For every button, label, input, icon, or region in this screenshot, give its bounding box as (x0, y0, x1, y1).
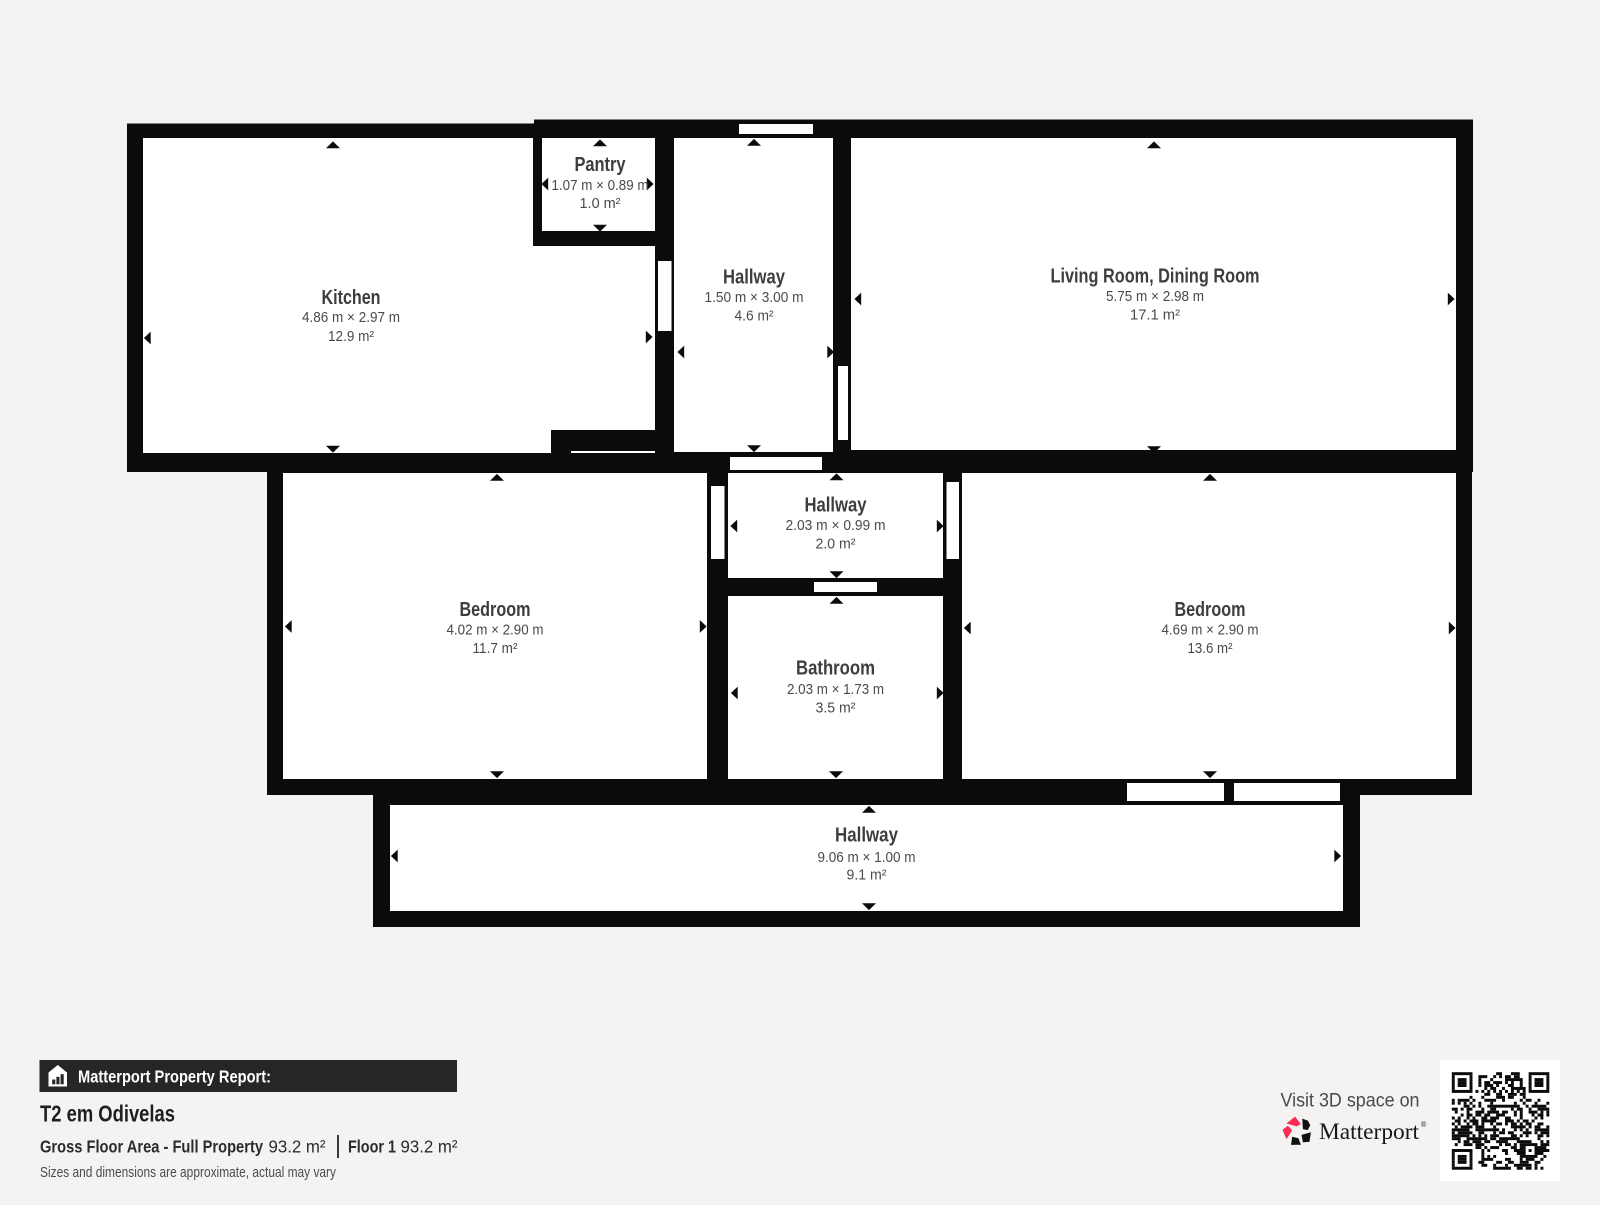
svg-text:Matterport Property Report:: Matterport Property Report: (78, 1067, 271, 1087)
svg-text:2.03 m × 1.73 m: 2.03 m × 1.73 m (787, 682, 884, 698)
svg-text:Bedroom: Bedroom (460, 599, 531, 621)
svg-text:T2 em Odivelas: T2 em Odivelas (40, 1101, 175, 1127)
svg-text:11.7 m²: 11.7 m² (473, 641, 518, 657)
svg-text:12.9 m²: 12.9 m² (328, 329, 374, 345)
svg-text:Pantry: Pantry (575, 154, 627, 176)
svg-text:9.06 m × 1.00 m: 9.06 m × 1.00 m (818, 850, 916, 866)
svg-text:Gross Floor Area - Full Proper: Gross Floor Area - Full Property (40, 1137, 263, 1157)
svg-text:Bathroom: Bathroom (796, 658, 875, 680)
svg-text:®: ® (1421, 1120, 1427, 1129)
svg-text:93.2 m²: 93.2 m² (269, 1137, 326, 1157)
svg-text:4.86 m × 2.97 m: 4.86 m × 2.97 m (302, 310, 400, 326)
svg-text:2.03 m × 0.99 m: 2.03 m × 0.99 m (786, 518, 886, 534)
svg-text:17.1 m²: 17.1 m² (1130, 308, 1180, 324)
svg-text:4.69 m × 2.90 m: 4.69 m × 2.90 m (1162, 623, 1259, 639)
svg-text:Floor 1: Floor 1 (348, 1137, 396, 1157)
svg-text:13.6 m²: 13.6 m² (1188, 641, 1233, 657)
svg-text:Hallway: Hallway (723, 267, 786, 289)
svg-text:93.2 m²: 93.2 m² (401, 1137, 458, 1157)
svg-text:9.1 m²: 9.1 m² (847, 868, 887, 884)
svg-text:3.5 m²: 3.5 m² (816, 701, 856, 717)
svg-text:5.75 m × 2.98 m: 5.75 m × 2.98 m (1106, 289, 1204, 305)
svg-text:1.07 m × 0.89 m: 1.07 m × 0.89 m (552, 178, 649, 194)
svg-text:Bedroom: Bedroom (1175, 599, 1246, 621)
svg-text:Matterport: Matterport (1319, 1119, 1420, 1144)
svg-text:Hallway: Hallway (835, 825, 899, 847)
svg-text:Hallway: Hallway (805, 495, 868, 517)
svg-text:4.02 m × 2.90 m: 4.02 m × 2.90 m (447, 623, 544, 639)
svg-text:2.0 m²: 2.0 m² (816, 537, 856, 553)
svg-text:Kitchen: Kitchen (322, 287, 381, 309)
svg-text:Sizes and dimensions are appro: Sizes and dimensions are approximate, ac… (40, 1164, 336, 1181)
svg-text:Visit 3D space on: Visit 3D space on (1281, 1090, 1420, 1112)
svg-text:Living Room, Dining Room: Living Room, Dining Room (1051, 266, 1260, 288)
svg-text:4.6 m²: 4.6 m² (735, 309, 774, 325)
svg-text:1.0 m²: 1.0 m² (580, 196, 621, 212)
svg-text:1.50 m × 3.00 m: 1.50 m × 3.00 m (705, 290, 804, 306)
